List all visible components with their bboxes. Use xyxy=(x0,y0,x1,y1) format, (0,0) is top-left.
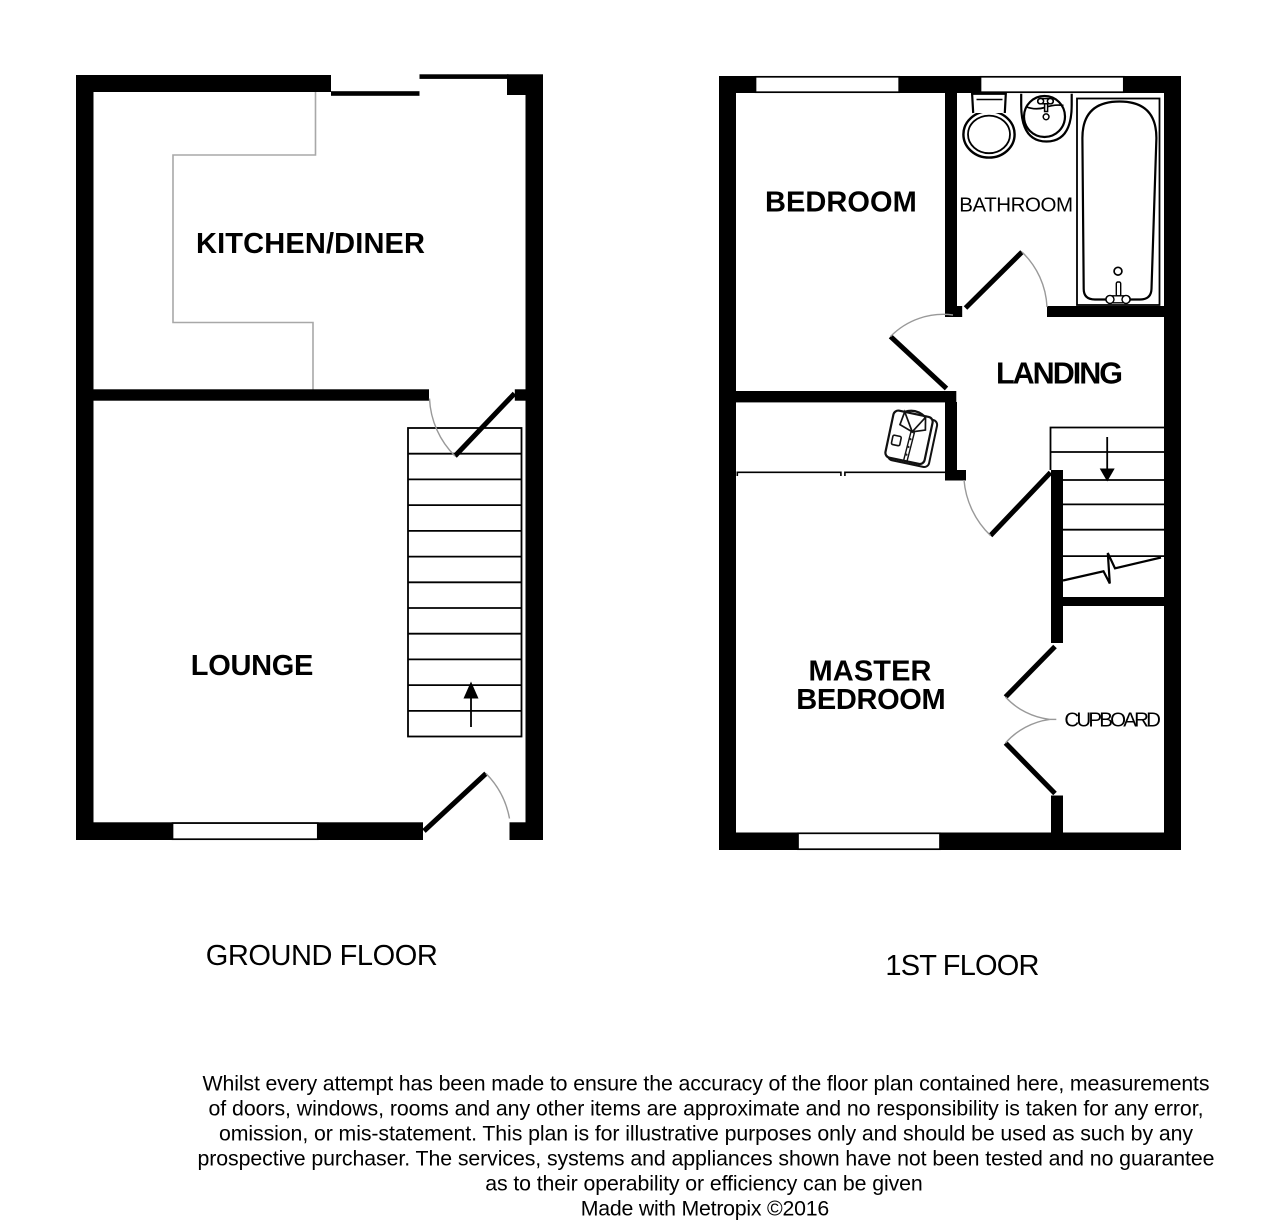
svg-text:omission, or mis-statement. Th: omission, or mis-statement. This plan is… xyxy=(219,1121,1193,1145)
svg-text:BEDROOM: BEDROOM xyxy=(765,186,917,218)
svg-text:BATHROOM: BATHROOM xyxy=(959,193,1073,216)
svg-text:as to their operability or eff: as to their operability or efficiency ca… xyxy=(485,1171,923,1195)
svg-text:Whilst every attempt has been: Whilst every attempt has been made to en… xyxy=(203,1071,1210,1095)
svg-text:KITCHEN/DINER: KITCHEN/DINER xyxy=(196,228,425,260)
svg-text:of doors, windows, rooms and a: of doors, windows, rooms and any other i… xyxy=(209,1096,1204,1120)
svg-text:CUPBOARD: CUPBOARD xyxy=(1064,709,1161,732)
svg-text:MASTER: MASTER xyxy=(809,656,932,688)
svg-text:LANDING: LANDING xyxy=(996,357,1123,391)
svg-text:GROUND FLOOR: GROUND FLOOR xyxy=(206,940,438,972)
svg-text:1ST FLOOR: 1ST FLOOR xyxy=(885,950,1039,982)
svg-text:BEDROOM: BEDROOM xyxy=(796,684,946,716)
svg-text:LOUNGE: LOUNGE xyxy=(191,650,313,682)
svg-text:prospective purchaser. The ser: prospective purchaser. The services, sys… xyxy=(198,1146,1215,1170)
svg-text:Made with Metropix ©2016: Made with Metropix ©2016 xyxy=(581,1196,830,1220)
